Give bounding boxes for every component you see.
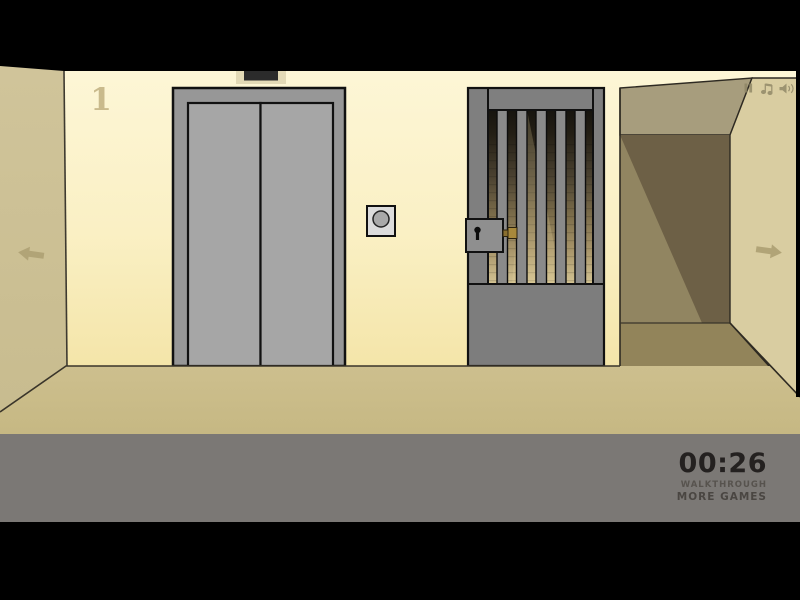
gate-lockbox[interactable]: [466, 219, 503, 252]
hud-block: 00:26 WALKTHROUGH MORE GAMES: [677, 450, 767, 503]
floor: [0, 366, 800, 434]
keyhole-stem: [476, 231, 479, 240]
more-games-link[interactable]: MORE GAMES: [677, 492, 767, 503]
walkthrough-link[interactable]: WALKTHROUGH: [677, 481, 767, 490]
elevator-right-door[interactable]: [261, 103, 334, 366]
left-wall: [0, 66, 67, 412]
right-edge-vignette: [796, 66, 800, 397]
game-scene: [0, 0, 800, 600]
latch-barrel[interactable]: [508, 228, 517, 239]
elevator-call-button[interactable]: [373, 211, 389, 227]
elevator-floor-indicator: [244, 71, 278, 81]
elevator-left-door[interactable]: [188, 103, 261, 366]
floor-number-label: 1: [86, 82, 116, 118]
countdown-timer: 00:26: [677, 450, 767, 478]
game-stage: 1 00:26 WALKTHROUGH MORE GAMES: [0, 0, 800, 600]
corridor-ceiling: [620, 78, 752, 135]
gate-bottom-panel: [468, 284, 604, 366]
